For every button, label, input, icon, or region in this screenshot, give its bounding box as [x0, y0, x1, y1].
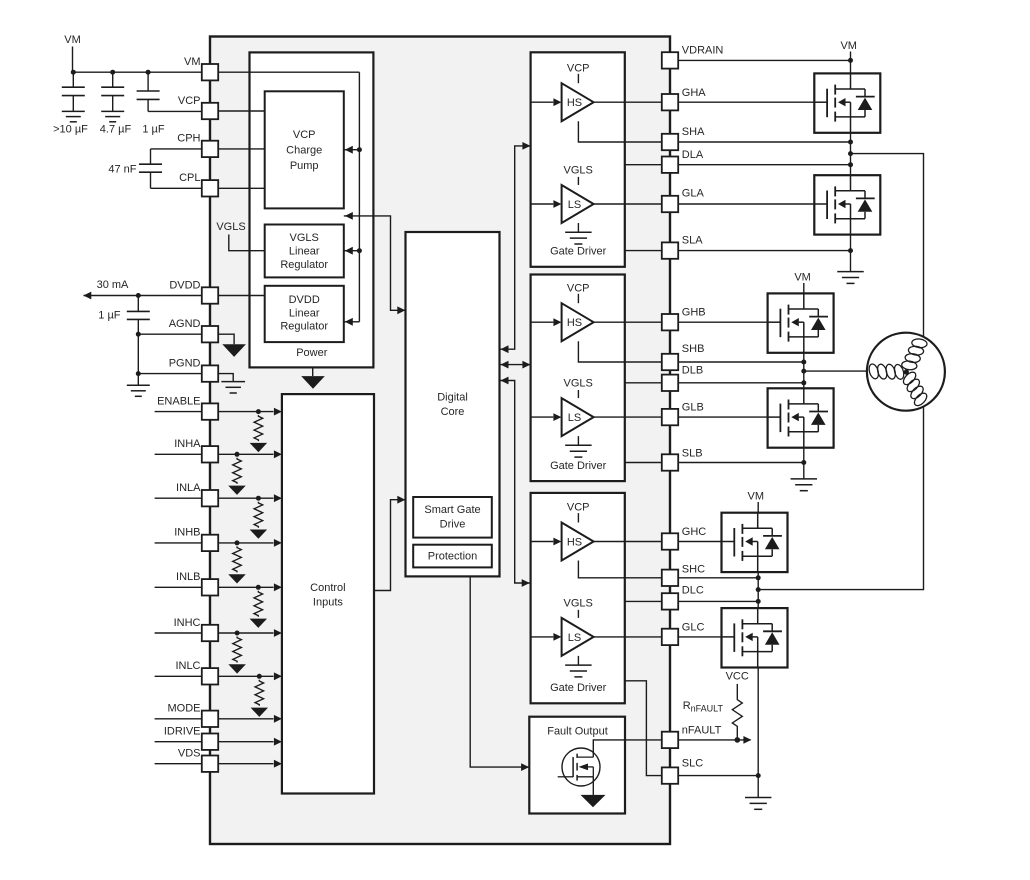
- svg-text:Inputs: Inputs: [313, 596, 343, 608]
- svg-text:Fault Output: Fault Output: [547, 726, 608, 738]
- svg-text:VDRAIN: VDRAIN: [682, 45, 724, 57]
- svg-text:SHC: SHC: [682, 563, 705, 575]
- svg-text:4.7 µF: 4.7 µF: [100, 124, 132, 136]
- svg-text:VM: VM: [840, 40, 857, 52]
- svg-text:SHB: SHB: [682, 343, 705, 355]
- svg-text:1 µF: 1 µF: [98, 310, 121, 322]
- svg-text:Gate Driver: Gate Driver: [550, 246, 607, 258]
- svg-text:VCP: VCP: [567, 62, 590, 74]
- svg-text:INHC: INHC: [174, 617, 201, 629]
- svg-text:SLB: SLB: [682, 447, 703, 459]
- svg-text:VCP: VCP: [567, 502, 590, 514]
- svg-text:SLA: SLA: [682, 234, 703, 246]
- svg-text:GLC: GLC: [682, 621, 705, 633]
- svg-text:INHB: INHB: [174, 527, 200, 539]
- svg-text:Digital: Digital: [437, 392, 468, 404]
- svg-text:SHA: SHA: [682, 126, 705, 138]
- svg-text:47 nF: 47 nF: [108, 164, 136, 176]
- svg-text:CPH: CPH: [177, 133, 200, 145]
- svg-text:Pump: Pump: [290, 160, 319, 172]
- svg-text:Power: Power: [296, 347, 328, 359]
- svg-text:IDRIVE: IDRIVE: [164, 726, 201, 738]
- svg-text:DVDD: DVDD: [289, 294, 320, 306]
- svg-text:VCP: VCP: [293, 129, 316, 141]
- svg-text:DLA: DLA: [682, 149, 704, 161]
- svg-text:GHB: GHB: [682, 307, 706, 319]
- svg-text:SLC: SLC: [682, 757, 703, 769]
- svg-text:LS: LS: [568, 412, 581, 424]
- svg-text:VCP: VCP: [567, 282, 590, 294]
- svg-text:Core: Core: [441, 406, 465, 418]
- svg-text:Linear: Linear: [289, 245, 320, 257]
- svg-text:VM: VM: [794, 272, 811, 284]
- svg-text:DLC: DLC: [682, 585, 704, 597]
- svg-text:LS: LS: [568, 199, 581, 211]
- svg-text:MODE: MODE: [168, 703, 201, 715]
- svg-text:1 µF: 1 µF: [142, 124, 165, 136]
- svg-text:Charge: Charge: [286, 144, 322, 156]
- svg-text:GHC: GHC: [682, 526, 707, 538]
- svg-text:INLC: INLC: [175, 660, 200, 672]
- svg-text:Linear: Linear: [289, 307, 320, 319]
- svg-text:Regulator: Regulator: [280, 321, 328, 333]
- svg-text:VM: VM: [184, 56, 201, 68]
- svg-text:LS: LS: [568, 632, 581, 644]
- svg-text:HS: HS: [567, 317, 582, 329]
- svg-text:HS: HS: [567, 97, 582, 109]
- svg-text:30 mA: 30 mA: [97, 279, 129, 291]
- svg-text:VGLS: VGLS: [564, 378, 593, 390]
- svg-text:Control: Control: [310, 582, 345, 594]
- svg-text:GLA: GLA: [682, 187, 705, 199]
- svg-text:CPL: CPL: [179, 172, 200, 184]
- svg-text:GHA: GHA: [682, 87, 707, 99]
- svg-text:PGND: PGND: [169, 357, 201, 369]
- svg-text:VDS: VDS: [178, 748, 201, 760]
- svg-text:INHA: INHA: [174, 438, 201, 450]
- svg-text:HS: HS: [567, 537, 582, 549]
- svg-text:Regulator: Regulator: [280, 259, 328, 271]
- svg-text:VGLS: VGLS: [216, 221, 245, 233]
- svg-text:Smart Gate: Smart Gate: [424, 504, 480, 516]
- svg-text:VGLS: VGLS: [290, 232, 319, 244]
- svg-text:VGLS: VGLS: [564, 165, 593, 177]
- svg-text:INLA: INLA: [176, 482, 201, 494]
- svg-text:>10 µF: >10 µF: [53, 124, 88, 136]
- svg-text:Gate Driver: Gate Driver: [550, 460, 607, 472]
- svg-text:DVDD: DVDD: [169, 279, 200, 291]
- svg-text:VGLS: VGLS: [564, 597, 593, 609]
- svg-text:VCP: VCP: [178, 95, 201, 107]
- svg-text:AGND: AGND: [169, 318, 201, 330]
- svg-text:DLB: DLB: [682, 365, 703, 377]
- svg-text:GLB: GLB: [682, 401, 704, 413]
- svg-text:VM: VM: [64, 34, 81, 46]
- svg-text:INLB: INLB: [176, 571, 200, 583]
- svg-text:Protection: Protection: [428, 550, 478, 562]
- svg-text:Drive: Drive: [440, 518, 466, 530]
- svg-text:nFAULT: nFAULT: [682, 725, 722, 737]
- svg-text:Gate Driver: Gate Driver: [550, 682, 607, 694]
- svg-text:ENABLE: ENABLE: [157, 395, 200, 407]
- svg-text:VCC: VCC: [726, 670, 749, 682]
- svg-text:VM: VM: [748, 491, 765, 503]
